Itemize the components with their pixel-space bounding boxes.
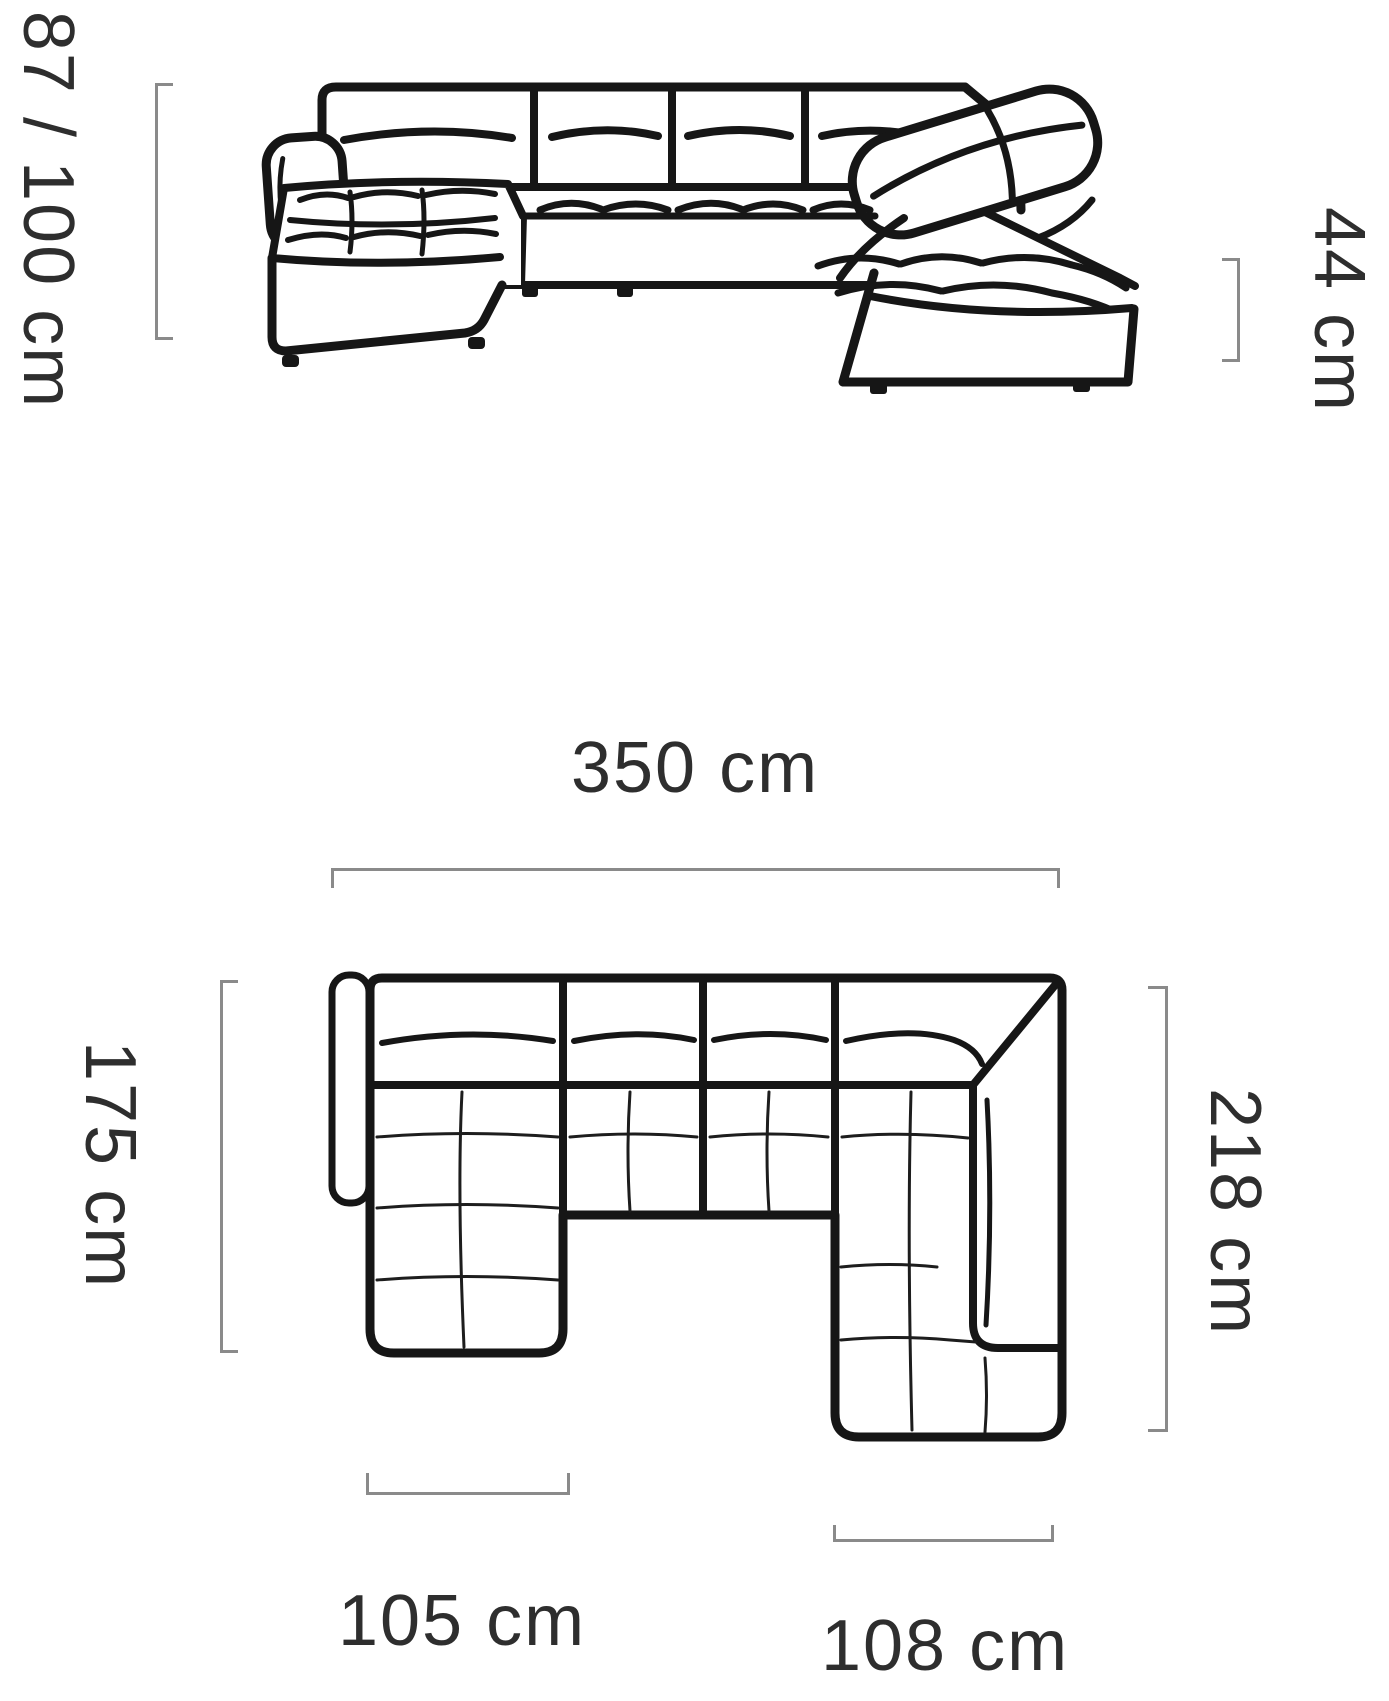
sofa-front-view — [240, 60, 1150, 405]
total-width-dimension-bracket — [331, 868, 1060, 888]
sofa-plan-view — [290, 940, 1090, 1500]
dimension-diagram: 87 / 100 cm 44 cm 350 cm 175 cm 218 cm 1… — [0, 0, 1389, 1701]
left-depth-dimension-label: 175 cm — [70, 865, 150, 1465]
total-width-dimension-label: 350 cm — [395, 728, 995, 808]
right-section-width-dimension-bracket — [833, 1525, 1054, 1542]
height-dimension-bracket — [155, 83, 173, 340]
left-depth-dimension-bracket — [220, 980, 238, 1353]
chaise-width-dimension-bracket — [366, 1473, 570, 1495]
height-dimension-label: 87 / 100 cm — [8, 0, 88, 510]
right-depth-dimension-label: 218 cm — [1195, 912, 1275, 1512]
right-depth-dimension-bracket — [1148, 986, 1168, 1432]
seat-height-dimension-bracket — [1222, 258, 1240, 362]
right-section-width-dimension-label: 108 cm — [645, 1606, 1245, 1686]
seat-height-dimension-label: 44 cm — [1299, 10, 1379, 610]
